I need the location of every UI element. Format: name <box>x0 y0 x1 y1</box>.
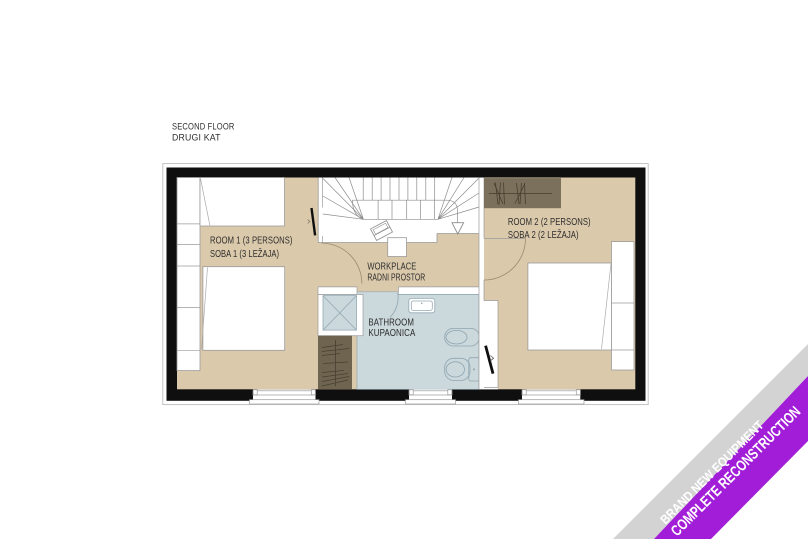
svg-text:BATHROOM: BATHROOM <box>368 318 414 329</box>
svg-text:WORKPLACE: WORKPLACE <box>367 261 416 272</box>
svg-text:SOBA 2 (2 LEŽAJA): SOBA 2 (2 LEŽAJA) <box>508 228 579 241</box>
svg-text:KUPAONICA: KUPAONICA <box>368 328 415 339</box>
svg-text:RADNI PROSTOR: RADNI PROSTOR <box>367 272 425 283</box>
svg-text:SOBA 1 (3 LEŽAJA): SOBA 1 (3 LEŽAJA) <box>210 247 279 260</box>
svg-text:SECOND FLOOR: SECOND FLOOR <box>172 122 235 132</box>
svg-text:DRUGI KAT: DRUGI KAT <box>172 133 221 143</box>
svg-text:ROOM 1 (3 PERSONS): ROOM 1 (3 PERSONS) <box>210 236 293 247</box>
svg-text:ROOM 2 (2 PERSONS): ROOM 2 (2 PERSONS) <box>508 217 591 228</box>
